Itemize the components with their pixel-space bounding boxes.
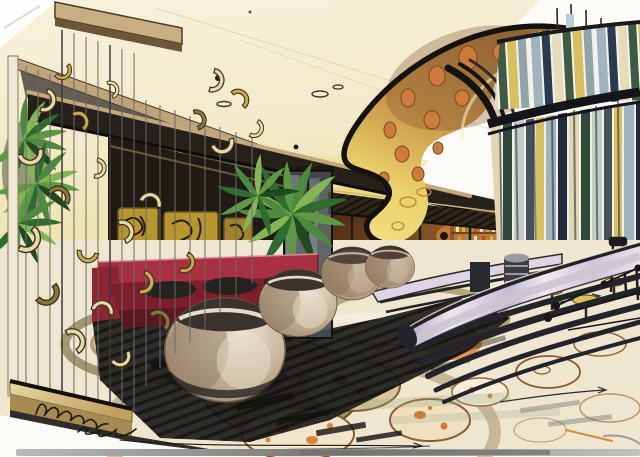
photo-edge <box>16 449 640 456</box>
screen-edge-post <box>8 56 18 396</box>
bar-equipment <box>470 262 490 292</box>
sketch-canvas <box>0 0 640 457</box>
